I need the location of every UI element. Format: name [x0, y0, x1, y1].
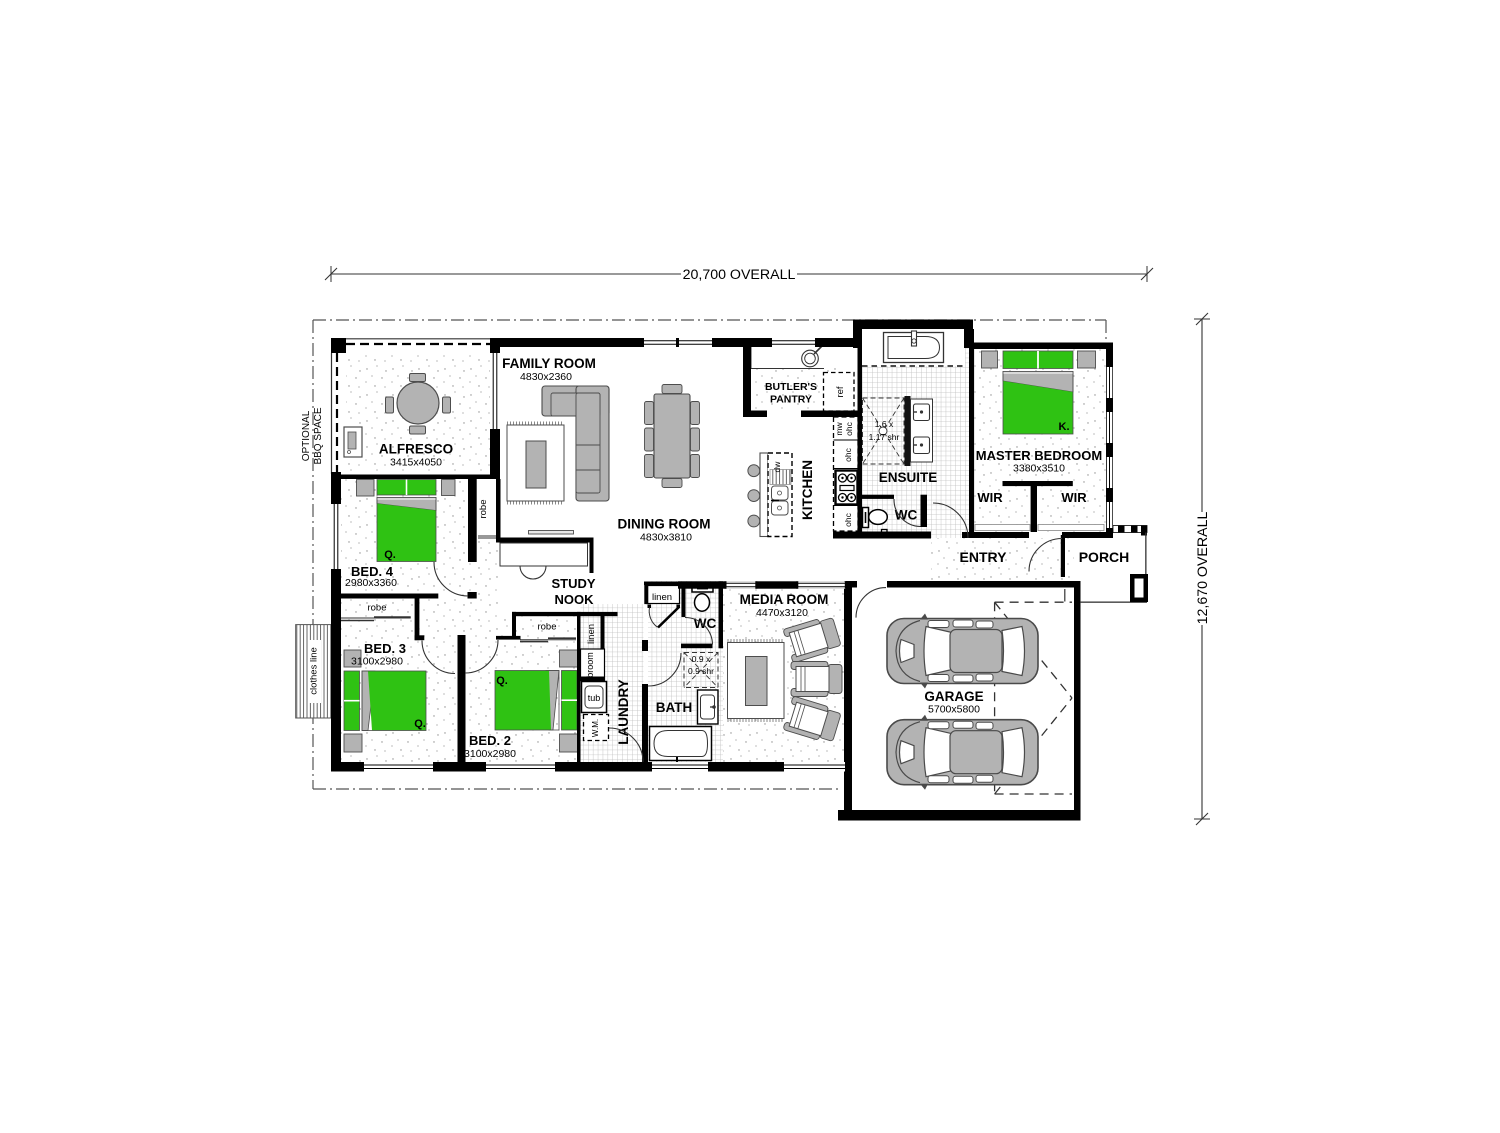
svg-text:ohc: ohc	[843, 447, 853, 461]
svg-text:OPTIONAL: OPTIONAL	[301, 410, 312, 461]
svg-text:4830x2360: 4830x2360	[520, 371, 572, 383]
svg-text:ENTRY: ENTRY	[960, 549, 1008, 565]
svg-text:1.17 shr: 1.17 shr	[869, 432, 900, 442]
svg-text:W.M.: W.M.	[591, 719, 600, 737]
svg-text:mw: mw	[834, 422, 844, 436]
svg-text:tub: tub	[588, 693, 601, 703]
svg-text:GARAGE: GARAGE	[924, 689, 983, 704]
svg-text:KITCHEN: KITCHEN	[800, 460, 815, 520]
svg-text:20,700 OVERALL: 20,700 OVERALL	[683, 267, 796, 283]
svg-text:5700x5800: 5700x5800	[928, 704, 980, 716]
svg-text:WC: WC	[694, 616, 717, 631]
svg-text:BUTLER'S: BUTLER'S	[765, 381, 817, 393]
svg-text:WC: WC	[895, 508, 918, 523]
svg-text:linen: linen	[652, 592, 672, 603]
svg-text:BED. 2: BED. 2	[469, 733, 511, 748]
svg-text:BED. 3: BED. 3	[364, 641, 406, 656]
svg-text:FAMILY ROOM: FAMILY ROOM	[502, 356, 596, 371]
svg-text:3380x3510: 3380x3510	[1013, 463, 1065, 475]
svg-text:broom: broom	[585, 652, 595, 678]
svg-text:robe: robe	[537, 622, 556, 633]
svg-text:MEDIA ROOM: MEDIA ROOM	[740, 592, 829, 607]
svg-text:4470x3120: 4470x3120	[756, 607, 808, 619]
svg-text:3415x4050: 3415x4050	[390, 457, 442, 469]
svg-text:NOOK: NOOK	[555, 592, 595, 607]
svg-text:ohc: ohc	[843, 512, 853, 526]
svg-text:robe: robe	[367, 603, 386, 614]
svg-text:3100x2980: 3100x2980	[464, 748, 516, 760]
svg-text:ref: ref	[835, 386, 846, 397]
svg-text:PORCH: PORCH	[1079, 549, 1130, 565]
svg-text:Q.: Q.	[496, 675, 508, 687]
svg-text:4830x3810: 4830x3810	[640, 532, 692, 544]
svg-text:ohc: ohc	[844, 421, 854, 435]
svg-text:BATH: BATH	[656, 700, 693, 715]
svg-text:2980x3360: 2980x3360	[345, 577, 397, 589]
svg-text:dw: dw	[772, 461, 782, 473]
svg-text:K.: K.	[1059, 421, 1070, 433]
svg-text:STUDY: STUDY	[551, 576, 595, 591]
svg-text:BBQ SPACE: BBQ SPACE	[313, 407, 324, 464]
svg-text:DINING ROOM: DINING ROOM	[618, 517, 711, 532]
svg-text:robe: robe	[478, 499, 489, 518]
svg-text:3100x2980: 3100x2980	[351, 656, 403, 668]
svg-text:MASTER BEDROOM: MASTER BEDROOM	[976, 448, 1102, 463]
svg-text:ALFRESCO: ALFRESCO	[379, 442, 453, 457]
svg-text:1.6 x: 1.6 x	[875, 419, 894, 429]
svg-text:0.9 x: 0.9 x	[692, 654, 711, 664]
svg-text:ENSUITE: ENSUITE	[879, 470, 938, 485]
svg-text:12,670 OVERALL: 12,670 OVERALL	[1195, 512, 1211, 625]
svg-text:linen: linen	[586, 624, 597, 644]
svg-text:WIR: WIR	[1061, 490, 1087, 505]
svg-text:WIR: WIR	[977, 490, 1003, 505]
svg-text:clothes line: clothes line	[309, 647, 320, 695]
svg-text:PANTRY: PANTRY	[770, 394, 812, 406]
svg-text:Q.: Q.	[384, 549, 396, 561]
svg-text:Q.: Q.	[414, 718, 426, 730]
svg-text:0.9 shr: 0.9 shr	[688, 666, 714, 676]
